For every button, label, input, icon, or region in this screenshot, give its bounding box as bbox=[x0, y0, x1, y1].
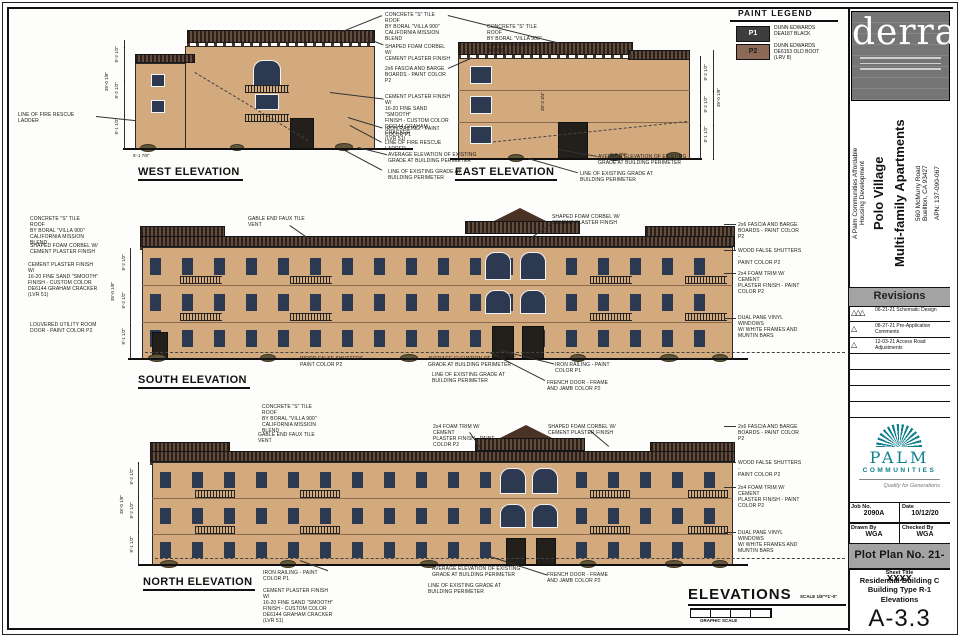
title-rule bbox=[688, 604, 846, 606]
window-row-graphic bbox=[160, 472, 725, 488]
dimension-label: 8'-1 1/2" bbox=[129, 536, 134, 552]
note-grade-line-south: LINE OF EXISTING GRADE AT BUILDING PERIM… bbox=[432, 372, 505, 384]
french-door-graphic bbox=[536, 538, 556, 566]
arch-window-graphic bbox=[485, 252, 511, 280]
corbel-row-graphic bbox=[187, 43, 375, 46]
firm-address-line-graphic bbox=[860, 57, 941, 59]
date-label: Date bbox=[900, 503, 950, 510]
note-foam-trim-north: 2x4 FOAM TRIM W/ CEMENT PLASTER FINISH -… bbox=[738, 485, 804, 509]
note-plaster-north: CEMENT PLASTER FINISH W/ 16-20 FINE SAND… bbox=[263, 588, 335, 624]
floor-line-graphic bbox=[142, 285, 733, 286]
dimension-line bbox=[130, 248, 131, 360]
project-address: 560 McMurry Road Buellton, CA 93427 bbox=[915, 102, 932, 284]
east-elevation-drawing bbox=[458, 42, 690, 160]
dimension-label: 8'-2 1/2" bbox=[129, 468, 134, 484]
floor-line-graphic bbox=[152, 498, 733, 499]
balcony-rail-graphic bbox=[688, 490, 728, 498]
dimension-label: 6'-1 7/8" bbox=[133, 153, 149, 158]
floor-line-graphic bbox=[142, 322, 733, 323]
window-row-graphic bbox=[150, 294, 725, 311]
drawing-sheet: PAINT LEGEND P1 DUNN EDWARDS DEA187 BLAC… bbox=[0, 0, 960, 637]
dimension-line bbox=[138, 462, 139, 566]
palm-logo-rule bbox=[859, 479, 940, 480]
south-elevation-drawing bbox=[140, 230, 735, 360]
wall-graphic bbox=[185, 46, 375, 150]
arch-window-graphic bbox=[520, 290, 546, 314]
note-corbel-south: SHAPED FOAM CORBEL W/ CEMENT PLASTER FIN… bbox=[30, 243, 100, 255]
north-elevation-drawing bbox=[150, 446, 735, 566]
note-tile-roof-north: CONCRETE "S" TILE ROOF BY BORAL "VILLA 9… bbox=[262, 404, 324, 434]
leader-line bbox=[724, 426, 736, 427]
firm-logo-block: derra bbox=[851, 11, 950, 101]
note-french-door-south: FRENCH DOOR - FRAME AND JAMB COLOR P2 bbox=[547, 380, 608, 392]
balcony-rail-graphic bbox=[180, 276, 222, 284]
revision-triangle-icon: △ bbox=[851, 324, 855, 334]
note-avg-grade-east: AVERAGE ELEVATION OF EXISTING GRADE AT B… bbox=[598, 154, 686, 166]
west-elevation-drawing bbox=[135, 30, 375, 150]
checked-by-label: Checked By bbox=[900, 524, 950, 531]
roof-graphic bbox=[140, 236, 735, 247]
note-avg-grade-south: AVERAGE ELEVATION OF EXISTING GRADE AT B… bbox=[428, 356, 516, 368]
graphic-scale-caption: GRAPHIC SCALE bbox=[700, 618, 737, 623]
elevations-sheet-title: ELEVATIONS bbox=[688, 586, 792, 603]
dimension-label: 8'-2 1/2" bbox=[114, 82, 119, 98]
paint-swatch-p2: P2 bbox=[736, 44, 770, 60]
plot-plan-banner: Plot Plan No. 21-xxxx bbox=[849, 544, 950, 570]
sheet-title-text: Residential Building C Building Type R-1… bbox=[849, 576, 950, 604]
dimension-label: 8'-1 1/2" bbox=[703, 126, 708, 142]
project-developer-text: A Palm Communities Affordable Housing De… bbox=[852, 102, 869, 284]
sheet-number: A-3.3 bbox=[849, 605, 950, 633]
dimension-label: 20'-3 3/4" bbox=[540, 92, 545, 111]
paint-swatch-p1: P1 bbox=[736, 26, 770, 42]
dimension-label: 8'-2 1/2" bbox=[121, 254, 126, 270]
revision-triangle-icon: △△△ bbox=[851, 308, 863, 318]
revisions-header: Revisions bbox=[849, 287, 950, 307]
north-elevation-label: NORTH ELEVATION bbox=[143, 576, 255, 591]
revision-row-empty bbox=[849, 401, 950, 418]
window-row-graphic bbox=[160, 508, 725, 524]
note-french-door-north: FRENCH DOOR - FRAME AND JAMB COLOR P2 bbox=[547, 572, 608, 584]
dimension-label: 8'-2 1/2" bbox=[121, 292, 126, 308]
arch-window-graphic bbox=[500, 504, 526, 528]
job-number-label: Job No. bbox=[849, 503, 899, 510]
revision-row: △ 08-27-21 Pre-Application Comments bbox=[849, 321, 950, 338]
palm-communities-logo-block: PALM COMMUNITIES Quality for Generations bbox=[849, 417, 950, 502]
revision-row: △ 12-03-21 Access Road Adjustments bbox=[849, 337, 950, 354]
date-cell: Date 10/12/20 bbox=[900, 502, 950, 523]
note-tile-roof-east: CONCRETE "S" TILE ROOF BY BORAL "VILLA 9… bbox=[487, 24, 549, 54]
arch-window-graphic bbox=[520, 252, 546, 280]
note-plaster-south: CEMENT PLASTER FINISH W/ 16-20 FINE SAND… bbox=[28, 262, 100, 298]
revision-text: 12-03-21 Access Road Adjustments bbox=[875, 339, 926, 351]
south-elevation-label: SOUTH ELEVATION bbox=[138, 374, 250, 389]
dimension-line bbox=[713, 50, 714, 160]
revision-text: 06-21-21 Schematic Design bbox=[875, 307, 937, 313]
door-graphic bbox=[290, 118, 314, 150]
note-shutters-south: WOOD FALSE SHUTTERS - PAINT COLOR P2 bbox=[738, 248, 802, 266]
note-vinyl-windows-north: DUAL PANE VINYL WINDOWS W/ WHITE FRAMES … bbox=[738, 530, 804, 554]
note-iron-railing-center: IRON RAILING - PAINT COLOR P1 bbox=[385, 126, 447, 138]
note-foam-trim-south: 2x4 FOAM TRIM W/ CEMENT PLASTER FINISH -… bbox=[738, 271, 804, 295]
drawn-by-value: WGA bbox=[849, 531, 899, 538]
window-graphic bbox=[470, 66, 492, 84]
job-number-value: 2090A bbox=[849, 510, 899, 517]
dimension-label: 35'-0 1/8" bbox=[119, 495, 124, 514]
paint-legend-row-p2: P2 DUNN EDWARDS DE6153 OLD BOOT (LRV 8) bbox=[728, 43, 850, 61]
window-graphic bbox=[470, 96, 492, 114]
sun-rays-icon bbox=[876, 424, 922, 447]
firm-logo: derra bbox=[852, 12, 949, 53]
palm-logo-tagline: Quality for Generations bbox=[883, 483, 940, 489]
note-gable-vent-south: GABLE END FAUX TILE VENT bbox=[248, 216, 306, 228]
dimension-label: 35'-0 1/8" bbox=[104, 72, 109, 91]
note-grade-line-west: LINE OF EXISTING GRADE AT BUILDING PERIM… bbox=[388, 169, 461, 181]
arch-window-graphic bbox=[532, 468, 558, 494]
paint-desc-p2: DUNN EDWARDS DE6153 OLD BOOT (LRV 8) bbox=[774, 43, 819, 61]
note-tile-roof-south: CONCRETE "S" TILE ROOF BY BORAL "VILLA 9… bbox=[30, 216, 96, 246]
dimension-label: 35'-0 1/8" bbox=[716, 88, 721, 107]
note-corbel-north: SHAPED FOAM CORBEL W/ CEMENT PLASTER FIN… bbox=[548, 424, 618, 436]
dimension-label: 8'-2 1/2" bbox=[703, 64, 708, 80]
window-graphic bbox=[255, 94, 279, 110]
note-fascia-north: 2x6 FASCIA AND BARGE BOARDS - PAINT COLO… bbox=[738, 424, 802, 442]
date-value: 10/12/20 bbox=[900, 510, 950, 517]
east-elevation-label: EAST ELEVATION bbox=[455, 166, 557, 181]
balcony-rail-graphic bbox=[688, 526, 728, 534]
note-gable-vent-north: GABLE END FAUX TILE VENT bbox=[258, 432, 316, 444]
balcony-rail-graphic bbox=[300, 526, 340, 534]
revision-row: △△△ 06-21-21 Schematic Design bbox=[849, 305, 950, 322]
balcony-rail-graphic bbox=[685, 313, 727, 321]
project-apn: APN: 137-090-067 bbox=[934, 102, 946, 284]
leader-line bbox=[724, 532, 736, 533]
graphic-scale-bar bbox=[690, 608, 772, 618]
dimension-label: 8'-2 1/2" bbox=[129, 502, 134, 518]
job-number-cell: Job No. 2090A bbox=[849, 502, 900, 523]
window-graphic bbox=[151, 100, 165, 113]
note-avg-grade-west: AVERAGE ELEVATION OF EXISTING GRADE AT B… bbox=[388, 152, 476, 164]
leader-line bbox=[724, 273, 736, 274]
window-row-graphic bbox=[160, 542, 725, 558]
arch-window-graphic bbox=[500, 468, 526, 494]
note-corbel-south-top: SHAPED FOAM CORBEL W/ CEMENT PLASTER FIN… bbox=[552, 214, 622, 226]
window-row-graphic bbox=[150, 330, 725, 347]
paint-legend-title: PAINT LEGEND bbox=[728, 8, 850, 18]
note-fascia-center: 2x6 FASCIA AND BARGE BOARDS - PAINT COLO… bbox=[385, 66, 447, 84]
gable-graphic bbox=[492, 208, 548, 222]
floor-line-graphic bbox=[152, 534, 733, 535]
paint-legend-rule bbox=[730, 20, 838, 22]
balcony-rail-graphic bbox=[590, 313, 632, 321]
dimension-label: 8'-1 1/2" bbox=[121, 328, 126, 344]
note-iron-railing-north: IRON RAILING - PAINT COLOR P1 bbox=[263, 570, 318, 582]
leader-line bbox=[724, 224, 736, 225]
scale-note: SCALE 1/8"=1'-0" bbox=[800, 594, 837, 599]
revision-triangle-icon: △ bbox=[851, 340, 855, 350]
revision-row-empty bbox=[849, 385, 950, 402]
note-grade-line-east: LINE OF EXISTING GRADE AT BUILDING PERIM… bbox=[580, 171, 653, 183]
arch-window-graphic bbox=[532, 504, 558, 528]
note-corbel-center: SHAPED FOAM CORBEL W/ CEMENT PLASTER FIN… bbox=[385, 44, 451, 62]
window-row-graphic bbox=[150, 258, 725, 275]
leader-line bbox=[724, 318, 736, 319]
paint-legend: PAINT LEGEND P1 DUNN EDWARDS DEA187 BLAC… bbox=[728, 8, 850, 61]
note-fire-ladder-west: LINE OF FIRE RESCUE LADDER bbox=[18, 112, 74, 124]
note-fire-ladder-center: LINE OF FIRE RESCUE LADDER bbox=[385, 140, 447, 152]
note-utility-door-south: LOUVERED UTILITY ROOM DOOR - PAINT COLOR… bbox=[30, 322, 100, 334]
balcony-rail-graphic bbox=[590, 276, 632, 284]
balcony-rail-graphic bbox=[590, 490, 630, 498]
leader-line bbox=[724, 487, 736, 488]
dimension-label: 8'-2 1/2" bbox=[703, 96, 708, 112]
drawn-by-cell: Drawn By WGA bbox=[849, 523, 900, 544]
paint-legend-row-p1: P1 DUNN EDWARDS DEA187 BLACK bbox=[728, 25, 850, 43]
note-avg-grade-north: AVERAGE ELEVATION OF EXISTING GRADE AT B… bbox=[432, 566, 520, 578]
firm-address-line-graphic bbox=[860, 68, 941, 70]
balcony-rail-graphic bbox=[245, 85, 289, 93]
floor-line-graphic bbox=[458, 90, 690, 91]
drawn-by-label: Drawn By bbox=[849, 524, 899, 531]
firm-address-line-graphic bbox=[860, 63, 941, 65]
paint-desc-p1: DUNN EDWARDS DEA187 BLACK bbox=[774, 25, 815, 37]
balcony-rail-graphic bbox=[195, 490, 235, 498]
checked-by-value: WGA bbox=[900, 531, 950, 538]
french-door-graphic bbox=[522, 326, 544, 359]
roof-graphic bbox=[135, 54, 195, 63]
leader-line bbox=[724, 462, 736, 463]
roof-graphic bbox=[150, 451, 735, 462]
dimension-line bbox=[700, 56, 701, 160]
note-vinyl-windows-south: DUAL PANE VINYL WINDOWS W/ WHITE FRAMES … bbox=[738, 315, 804, 339]
roof-graphic bbox=[628, 50, 690, 60]
balcony-rail-graphic bbox=[290, 313, 332, 321]
roof-graphic bbox=[187, 30, 375, 43]
balcony-rail-graphic bbox=[290, 276, 332, 284]
note-iron-railing-south: IRON RAILING - PAINT COLOR P1 bbox=[555, 362, 610, 374]
window-graphic bbox=[151, 74, 165, 87]
checked-by-cell: Checked By WGA bbox=[900, 523, 950, 544]
sheet-title-block: Sheet Title Residential Building C Build… bbox=[849, 568, 950, 631]
dimension-label: 8'-1 1/2" bbox=[114, 118, 119, 134]
west-elevation-label: WEST ELEVATION bbox=[138, 166, 243, 181]
arch-window-graphic bbox=[485, 290, 511, 314]
arch-window-graphic bbox=[253, 60, 281, 86]
gable-graphic bbox=[498, 425, 554, 439]
note-tile-roof-center: CONCRETE "S" TILE ROOF BY BORAL "VILLA 9… bbox=[385, 12, 447, 42]
balcony-rail-graphic bbox=[300, 490, 340, 498]
palm-logo-name: PALM bbox=[849, 448, 950, 467]
revision-row-empty bbox=[849, 369, 950, 386]
dimension-label: 35'-0 1/8" bbox=[110, 282, 115, 301]
palm-logo-sub: COMMUNITIES bbox=[849, 467, 950, 474]
note-shutters-north: WOOD FALSE SHUTTERS - PAINT COLOR P2 bbox=[738, 460, 802, 478]
note-fascia-south: 2x6 FASCIA AND BARGE BOARDS - PAINT COLO… bbox=[738, 222, 802, 240]
corbel-row-graphic bbox=[458, 55, 633, 58]
balcony-rail-graphic bbox=[590, 526, 630, 534]
balcony-rail-graphic bbox=[685, 276, 727, 284]
balcony-rail-graphic bbox=[180, 313, 222, 321]
note-grade-line-north: LINE OF EXISTING GRADE AT BUILDING PERIM… bbox=[428, 583, 501, 595]
project-name: Polo Village Multi-family Apartments bbox=[869, 102, 913, 284]
dimension-label: 8'-2 1/2" bbox=[114, 46, 119, 62]
balcony-rail-graphic bbox=[195, 526, 235, 534]
revision-text: 08-27-21 Pre-Application Comments bbox=[875, 323, 930, 335]
note-shutters-south-bottom: WOOD FALSE SHUTTERS - PAINT COLOR P2 bbox=[300, 356, 370, 368]
dimension-line bbox=[124, 40, 125, 150]
note-foam-trim-north-top: 2x4 FOAM TRIM W/ CEMENT PLASTER FINISH -… bbox=[433, 424, 499, 448]
grade-dashed-line-graphic bbox=[145, 352, 845, 353]
revision-row-empty bbox=[849, 353, 950, 370]
leader-line bbox=[724, 250, 736, 251]
